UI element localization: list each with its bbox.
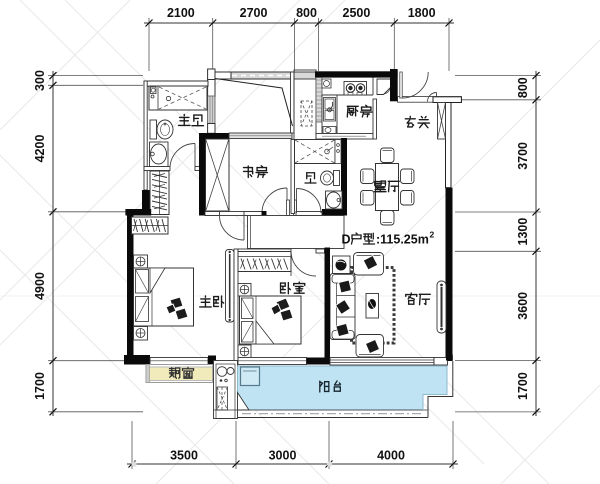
svg-text:3700: 3700 <box>516 142 530 170</box>
svg-text:3500: 3500 <box>170 449 198 463</box>
svg-text:2100: 2100 <box>167 6 195 20</box>
svg-text:2: 2 <box>430 230 435 240</box>
svg-text:1700: 1700 <box>516 372 530 400</box>
svg-text:4200: 4200 <box>33 135 47 163</box>
svg-text:1700: 1700 <box>33 372 47 400</box>
svg-text::115.25m: :115.25m <box>376 233 429 247</box>
svg-text:D: D <box>341 233 350 247</box>
svg-text:1800: 1800 <box>408 6 436 20</box>
svg-text:4000: 4000 <box>377 449 405 463</box>
svg-text:2500: 2500 <box>343 6 371 20</box>
svg-text:800: 800 <box>296 6 317 20</box>
svg-text:2700: 2700 <box>240 6 268 20</box>
svg-text:4900: 4900 <box>33 272 47 300</box>
svg-text:1300: 1300 <box>516 218 530 246</box>
svg-text:800: 800 <box>516 77 530 98</box>
svg-text:3000: 3000 <box>269 449 297 463</box>
svg-text:300: 300 <box>33 70 47 91</box>
svg-text:3600: 3600 <box>516 292 530 320</box>
